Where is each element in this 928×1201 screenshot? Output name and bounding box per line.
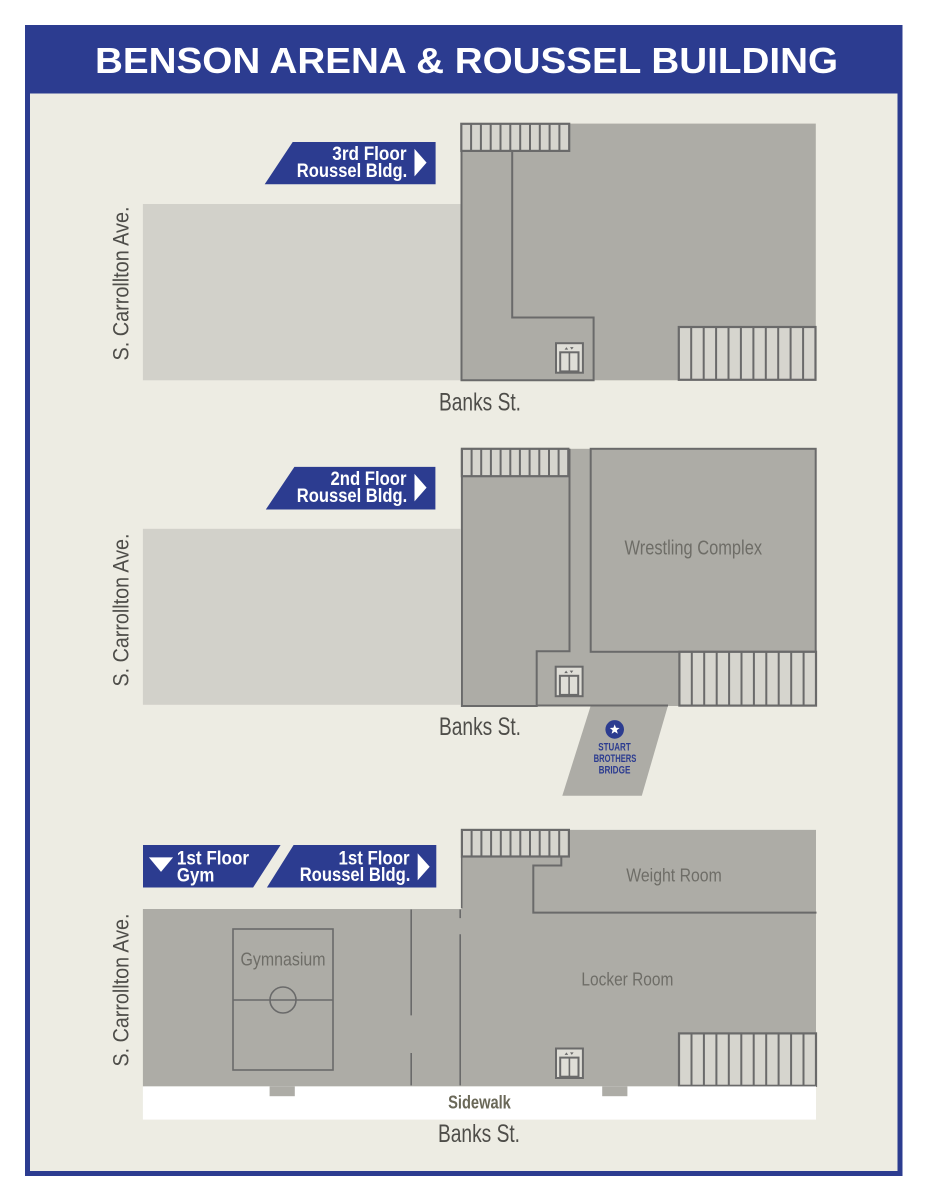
svg-text:BRIDGE: BRIDGE [599,764,631,776]
svg-text:Gym: Gym [177,866,214,887]
svg-text:BENSON ARENA & ROUSSEL BUILDIN: BENSON ARENA & ROUSSEL BUILDING [95,40,838,81]
svg-text:BROTHERS: BROTHERS [594,753,637,765]
svg-text:S. Carrollton Ave.: S. Carrollton Ave. [109,207,134,361]
svg-text:Roussel Bldg.: Roussel Bldg. [300,865,411,886]
svg-text:Banks St.: Banks St. [438,1120,520,1148]
svg-text:Banks St.: Banks St. [439,713,521,741]
svg-text:Roussel Bldg.: Roussel Bldg. [297,486,407,507]
svg-text:S. Carrollton Ave.: S. Carrollton Ave. [109,534,134,687]
svg-text:Gymnasium: Gymnasium [241,950,326,970]
svg-text:Weight Room: Weight Room [626,865,722,885]
svg-text:Locker Room: Locker Room [581,969,673,989]
svg-text:Sidewalk: Sidewalk [448,1093,511,1113]
svg-text:Roussel Bldg.: Roussel Bldg. [297,161,407,182]
svg-text:Wrestling Complex: Wrestling Complex [625,538,763,560]
svg-text:Banks St.: Banks St. [439,389,521,417]
svg-text:STUART: STUART [598,742,631,754]
svg-text:S. Carrollton Ave.: S. Carrollton Ave. [109,914,134,1067]
